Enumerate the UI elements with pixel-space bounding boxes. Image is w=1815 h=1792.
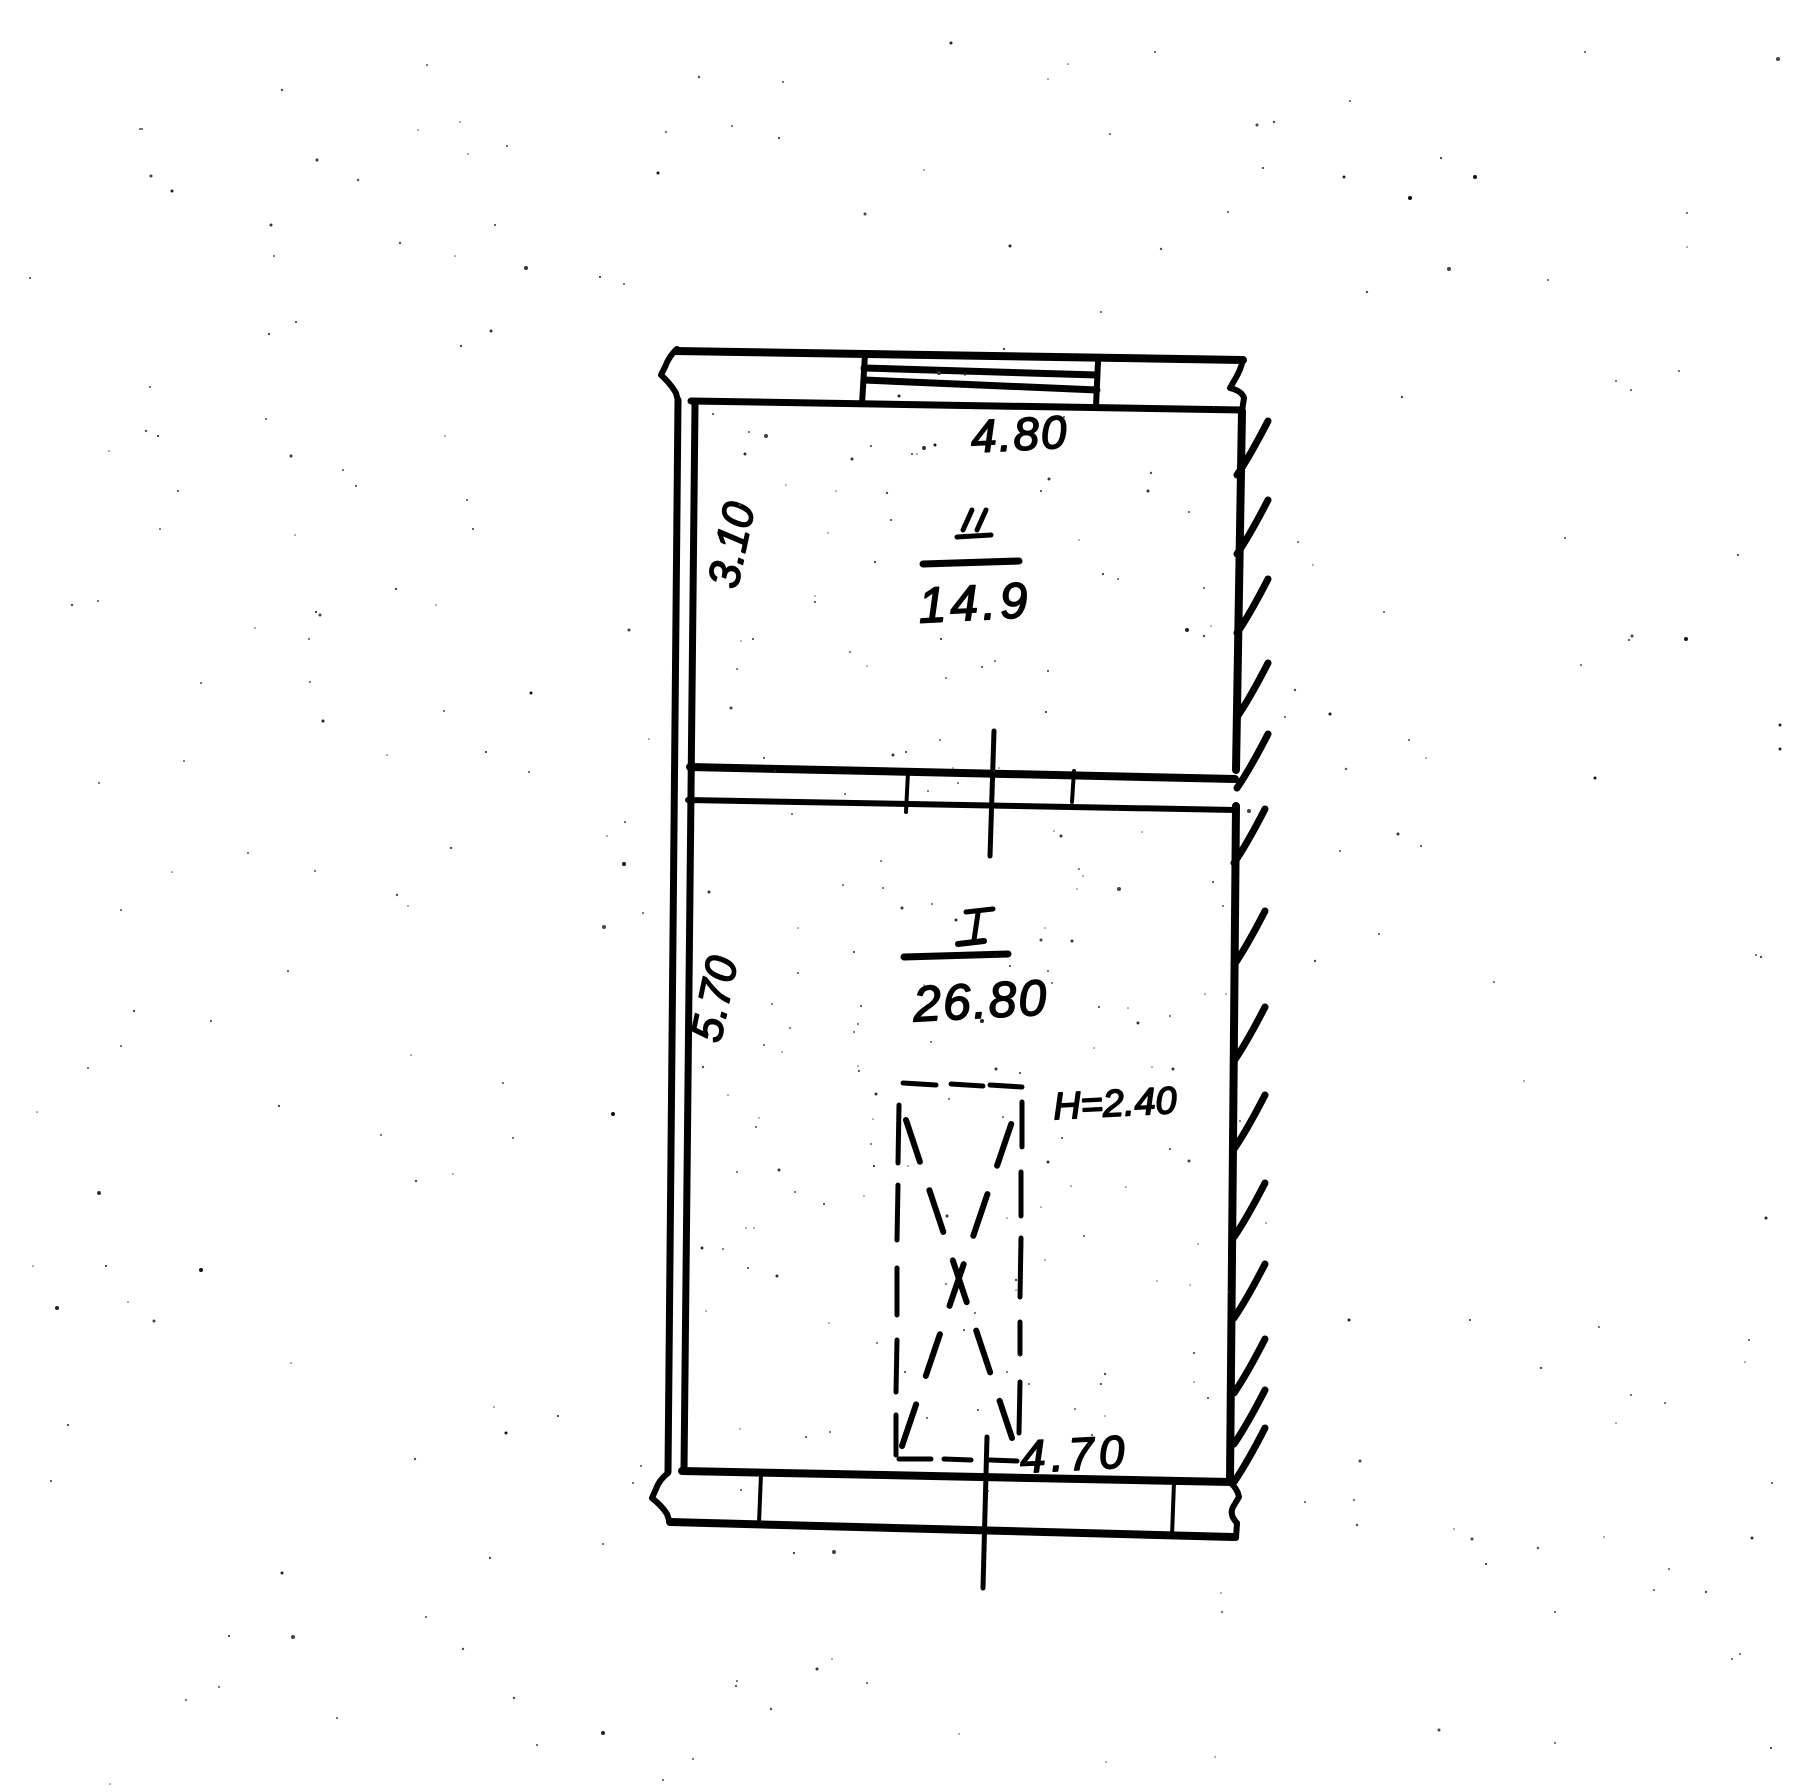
svg-text:H=2.40: H=2.40 bbox=[1052, 1080, 1178, 1128]
svg-text:26.80: 26.80 bbox=[911, 969, 1050, 1032]
svg-text:3.10: 3.10 bbox=[699, 498, 765, 592]
svg-text:4.80: 4.80 bbox=[970, 405, 1070, 462]
svg-text:14.9: 14.9 bbox=[917, 572, 1033, 634]
svg-text:4.70: 4.70 bbox=[1019, 1425, 1131, 1483]
